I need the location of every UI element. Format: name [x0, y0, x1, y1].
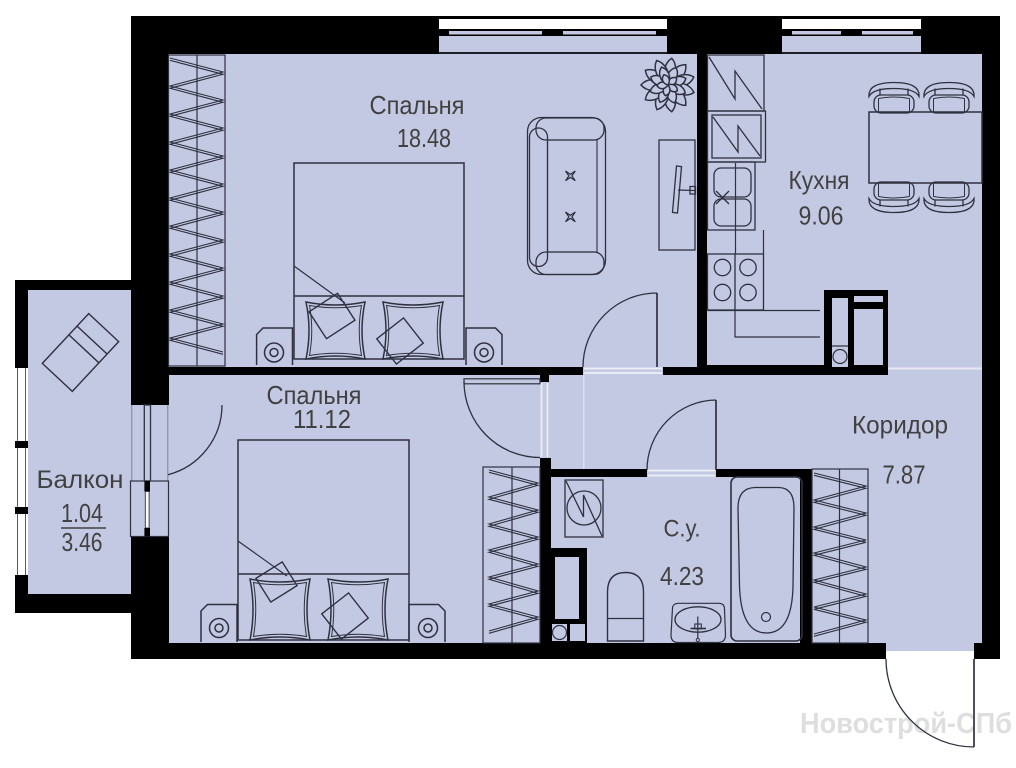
svg-text:Балкон: Балкон: [37, 466, 124, 494]
svg-text:7.87: 7.87: [883, 460, 926, 490]
svg-text:18.48: 18.48: [397, 123, 451, 153]
svg-text:С.у.: С.у.: [664, 516, 701, 543]
svg-text:9.06: 9.06: [799, 201, 844, 231]
svg-text:Спальня: Спальня: [370, 90, 465, 120]
svg-text:Коридор: Коридор: [852, 412, 948, 440]
svg-text:4.23: 4.23: [660, 561, 704, 591]
svg-text:11.12: 11.12: [293, 404, 351, 434]
svg-text:Кухня: Кухня: [789, 165, 850, 195]
svg-text:3.46: 3.46: [62, 527, 103, 557]
svg-text:1.04: 1.04: [61, 498, 103, 528]
svg-text:Новострой-СПб: Новострой-СПб: [800, 708, 1012, 740]
